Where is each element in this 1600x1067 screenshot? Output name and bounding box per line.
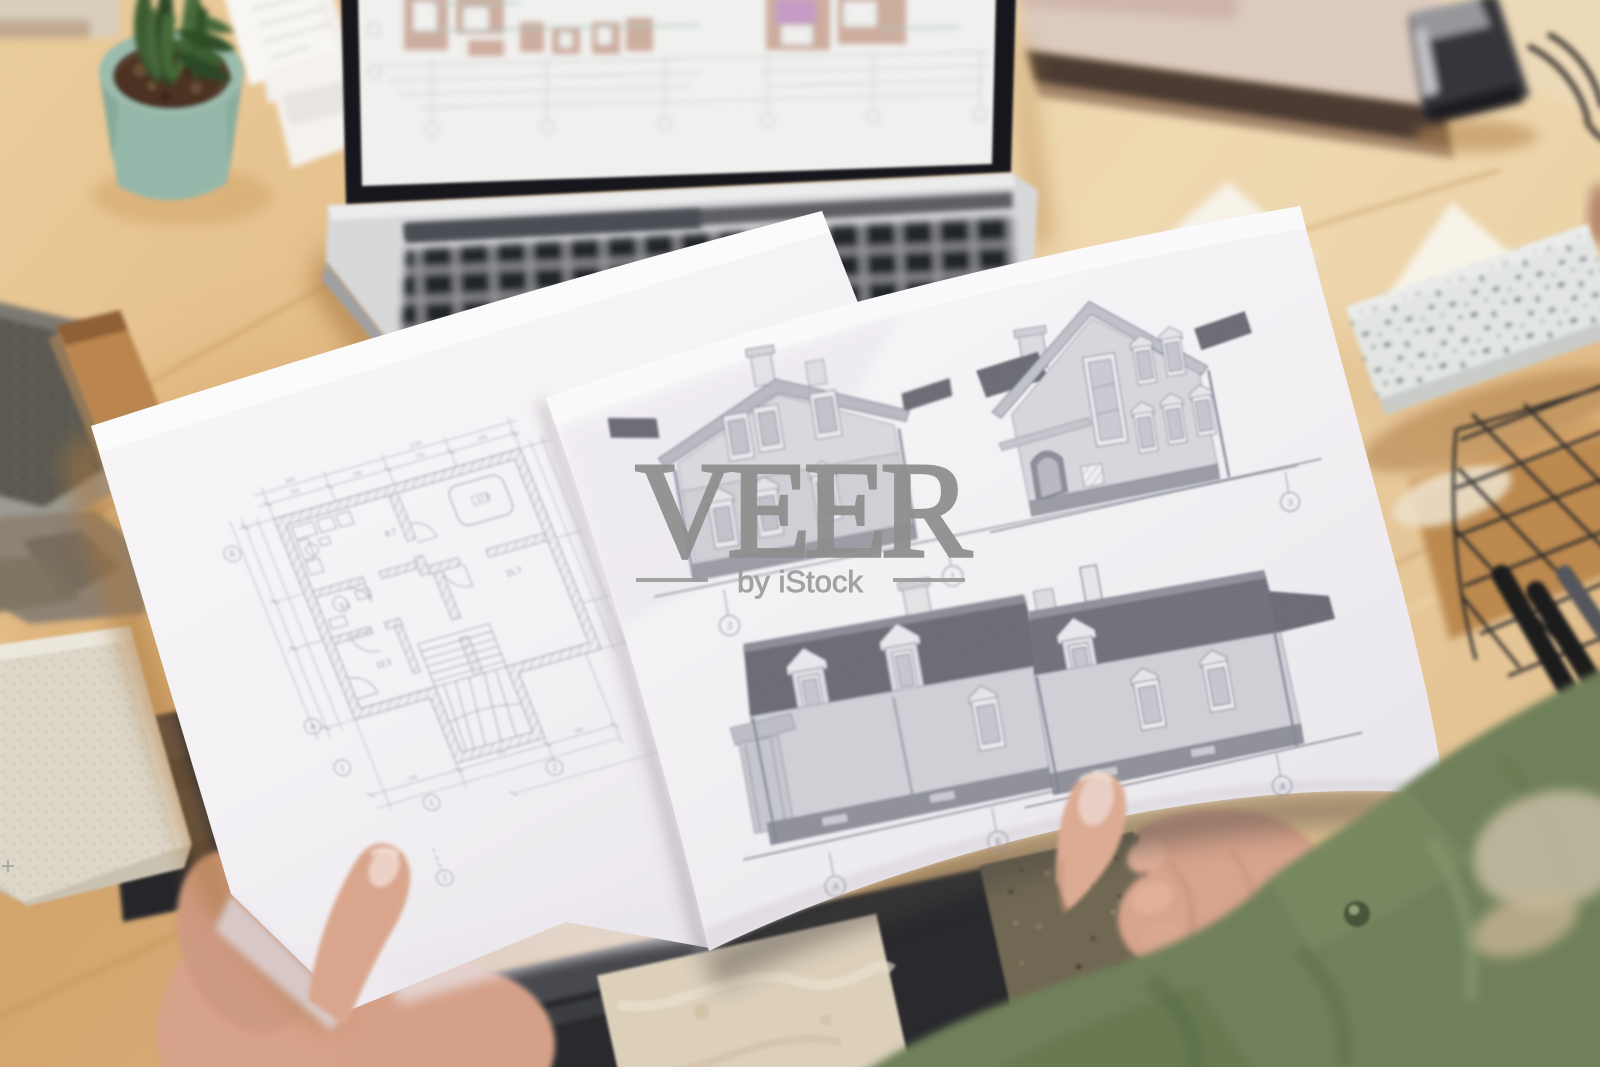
svg-text:by iStock: by iStock [737, 564, 863, 599]
